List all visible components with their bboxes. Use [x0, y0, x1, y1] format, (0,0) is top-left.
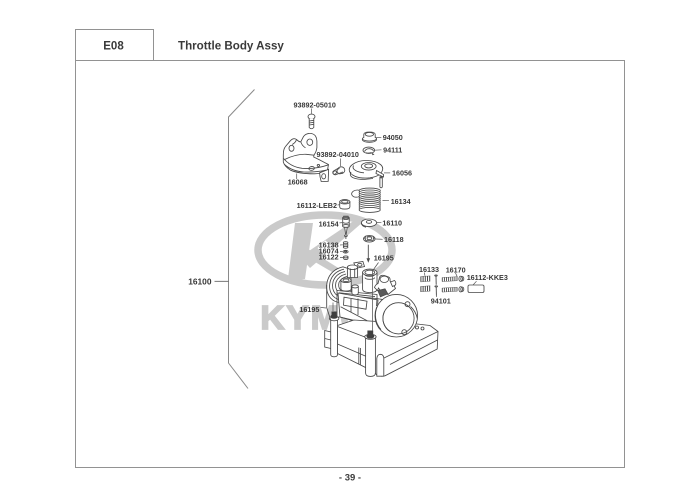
svg-text:16195: 16195 — [299, 305, 319, 314]
svg-text:16170: 16170 — [446, 265, 466, 274]
svg-text:16118: 16118 — [384, 235, 404, 244]
svg-text:94050: 94050 — [383, 133, 403, 142]
svg-text:16100: 16100 — [188, 277, 212, 287]
svg-text:16068: 16068 — [288, 177, 308, 186]
svg-text:- 39 -: - 39 - — [339, 473, 361, 484]
svg-text:94101: 94101 — [431, 297, 451, 306]
svg-text:16195: 16195 — [374, 254, 394, 263]
svg-text:16122: 16122 — [319, 253, 339, 262]
svg-text:16056: 16056 — [392, 169, 412, 178]
svg-text:16134: 16134 — [391, 197, 411, 206]
svg-text:94111: 94111 — [383, 145, 402, 154]
svg-text:16112-LEB2: 16112-LEB2 — [297, 201, 337, 210]
svg-text:Throttle Body Assy: Throttle Body Assy — [178, 40, 284, 53]
svg-text:93892-05010: 93892-05010 — [294, 101, 336, 110]
svg-text:93892-04010: 93892-04010 — [317, 150, 359, 159]
svg-text:16154: 16154 — [319, 220, 339, 229]
svg-text:16110: 16110 — [382, 219, 402, 228]
svg-text:16133: 16133 — [419, 265, 439, 274]
svg-text:E08: E08 — [103, 40, 124, 52]
svg-text:16112-KKE3: 16112-KKE3 — [467, 273, 508, 282]
